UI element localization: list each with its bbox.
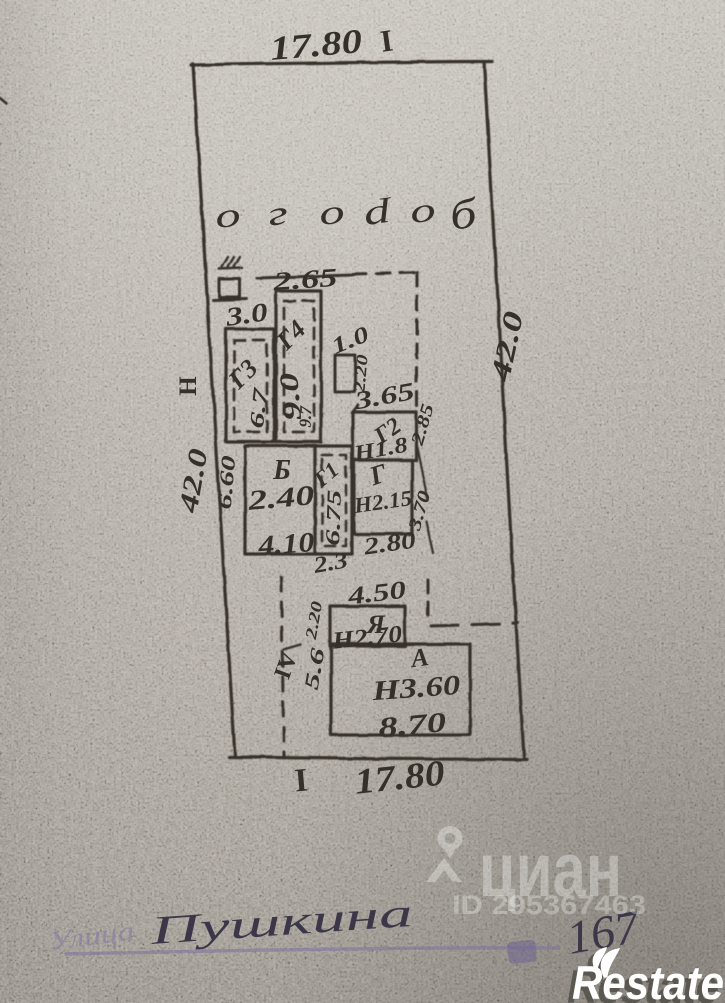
svg-text:2.65: 2.65 xyxy=(271,263,338,296)
svg-text:о: о xyxy=(317,198,347,239)
svg-text:о: о xyxy=(213,201,243,242)
svg-text:ID 295367463: ID 295367463 xyxy=(452,890,646,920)
svg-text:о: о xyxy=(408,196,438,237)
svg-text:4.10: 4.10 xyxy=(256,527,315,562)
svg-text:Н3.60: Н3.60 xyxy=(370,670,461,707)
svg-text:6.60: 6.60 xyxy=(214,455,241,511)
svg-text:6.7: 6.7 xyxy=(246,386,272,430)
svg-text:6.75: 6.75 xyxy=(322,489,346,546)
svg-text:8.70: 8.70 xyxy=(377,707,447,744)
svg-text:3.0: 3.0 xyxy=(223,297,270,332)
svg-text:Б: Б xyxy=(272,455,291,486)
svg-text:H: H xyxy=(175,376,202,396)
svg-text:2.40: 2.40 xyxy=(246,480,316,517)
svg-text:9.7: 9.7 xyxy=(296,404,316,427)
